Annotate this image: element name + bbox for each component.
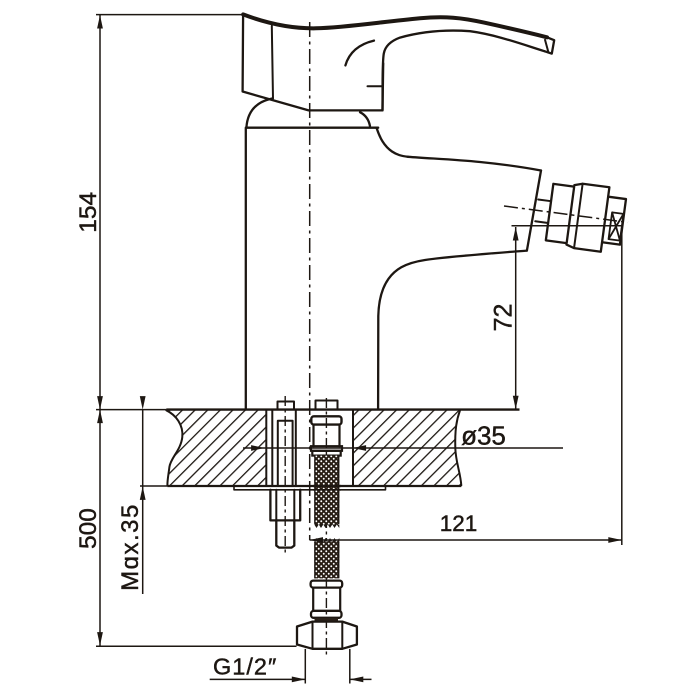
svg-text:ø35: ø35: [461, 421, 506, 451]
svg-text:500: 500: [75, 508, 102, 549]
svg-text:Mɑx.35: Mɑx.35: [117, 503, 144, 591]
svg-text:154: 154: [75, 192, 102, 233]
svg-text:72: 72: [490, 304, 518, 332]
svg-text:G1/2″: G1/2″: [213, 654, 277, 680]
svg-text:121: 121: [440, 511, 478, 536]
